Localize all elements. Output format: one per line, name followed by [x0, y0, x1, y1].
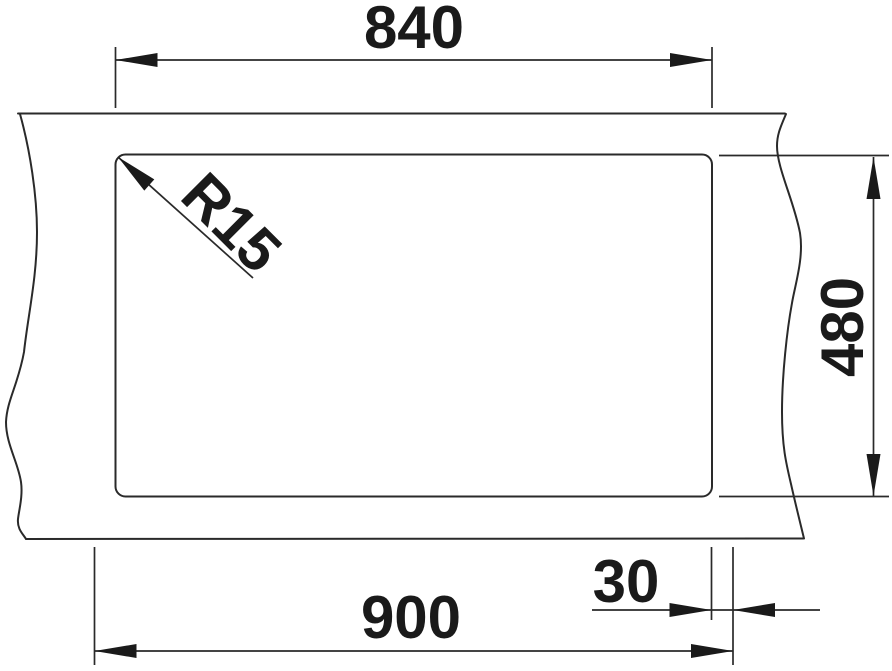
technical-drawing-canvas: 840 480 900 30 — [0, 0, 892, 671]
radius-callout: R15 — [118, 157, 294, 285]
dim-840-arrow-left — [116, 53, 158, 67]
dim-840-label: 840 — [364, 0, 464, 61]
countertop-outline — [6, 114, 804, 540]
countertop-left-break-line — [6, 114, 37, 539]
dim-480-label: 480 — [809, 277, 876, 377]
dim-480-arrow-bottom — [867, 454, 881, 496]
dim-900-arrow-right — [691, 644, 733, 658]
dim-30-label: 30 — [593, 548, 660, 615]
dim-depth: 480 — [719, 156, 889, 497]
dim-480-arrow-top — [867, 157, 881, 199]
countertop-right-break-line — [777, 114, 804, 539]
countertop-bottom-edge — [26, 539, 803, 540]
radius-label: R15 — [169, 160, 294, 285]
dim-cutout-width: 840 — [116, 0, 713, 108]
dim-30-arrow-right — [733, 603, 775, 617]
dim-900-label: 900 — [361, 584, 461, 651]
dim-30-arrow-left — [670, 603, 712, 617]
dim-900-arrow-left — [95, 644, 137, 658]
dimension-drawing: 840 480 900 30 — [0, 0, 892, 671]
dim-840-arrow-right — [670, 53, 712, 67]
dim-rim-offset: 30 — [592, 547, 820, 620]
